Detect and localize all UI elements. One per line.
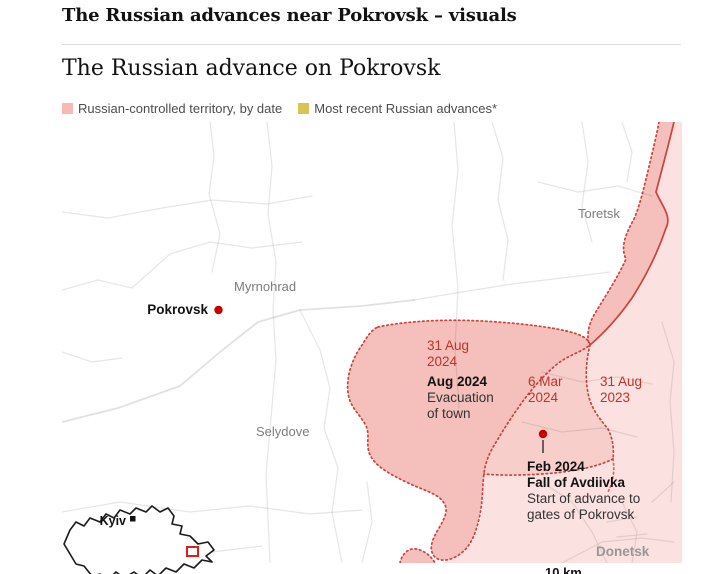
svg-text:31 Aug: 31 Aug (427, 338, 469, 353)
legend-territory-label: Russian-controlled territory, by date (78, 101, 282, 116)
city-label-myrnohrad: Myrnohrad (234, 279, 296, 294)
svg-text:2024: 2024 (528, 390, 559, 405)
ukraine-inset-map: Kyiv (56, 496, 226, 574)
inset-canvas: Kyiv (56, 496, 226, 574)
svg-text:Aug 2024: Aug 2024 (427, 374, 488, 389)
chart-title: The Russian advance on Pokrovsk (62, 56, 682, 81)
svg-text:Start of advance to: Start of advance to (527, 491, 640, 506)
scale-bar-label: 10 km (545, 565, 582, 574)
pokrovsk-marker-icon (214, 306, 222, 314)
svg-text:Fall of Avdiivka: Fall of Avdiivka (527, 475, 626, 490)
city-label-pokrovsk: Pokrovsk (147, 302, 208, 317)
page-title: The Russian advances near Pokrovsk – vis… (62, 5, 682, 26)
city-label-toretsk: Toretsk (578, 206, 620, 221)
divider (62, 44, 681, 45)
kyiv-marker-icon (130, 516, 136, 522)
svg-text:gates of Pokrovsk: gates of Pokrovsk (527, 507, 635, 522)
legend-item-advances: Most recent Russian advances* (298, 101, 497, 116)
svg-text:2023: 2023 (600, 390, 630, 405)
city-label-donetsk: Donetsk (596, 544, 650, 559)
svg-text:Feb 2024: Feb 2024 (527, 459, 585, 474)
territory-swatch-icon (62, 103, 73, 114)
svg-text:31 Aug: 31 Aug (600, 374, 642, 389)
svg-text:of town: of town (427, 406, 471, 421)
ukraine-outline (64, 506, 214, 574)
territory-small-blob (400, 549, 435, 563)
advances-swatch-icon (298, 103, 309, 114)
legend-advances-label: Most recent Russian advances* (314, 101, 497, 116)
svg-text:6 Mar: 6 Mar (528, 374, 563, 389)
legend: Russian-controlled territory, by date Mo… (62, 101, 497, 116)
legend-item-territory: Russian-controlled territory, by date (62, 101, 282, 116)
city-label-selydove: Selydove (256, 424, 309, 439)
svg-text:2024: 2024 (427, 354, 458, 369)
callout-6mar2024: 6 Mar 2024 (528, 374, 563, 405)
article-visual: The Russian advances near Pokrovsk – vis… (0, 0, 701, 574)
avdiivka-marker-icon (539, 430, 547, 438)
svg-text:Evacuation: Evacuation (427, 390, 494, 405)
kyiv-label: Kyiv (100, 514, 126, 528)
